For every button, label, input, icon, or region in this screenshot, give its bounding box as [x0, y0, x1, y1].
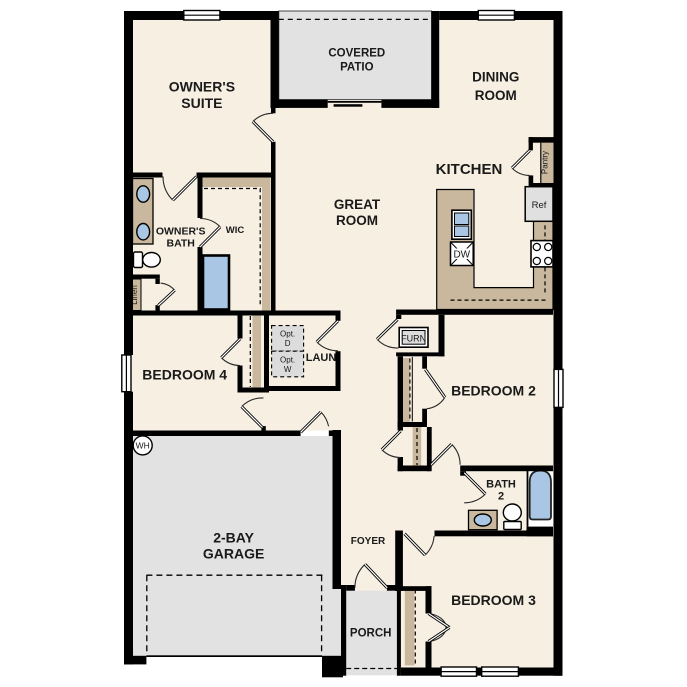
svg-text:BATH: BATH — [486, 479, 516, 491]
svg-text:BEDROOM 3: BEDROOM 3 — [451, 592, 536, 608]
svg-text:BEDROOM 2: BEDROOM 2 — [451, 383, 536, 399]
svg-text:BEDROOM 4: BEDROOM 4 — [142, 367, 227, 383]
svg-text:KITCHEN: KITCHEN — [436, 161, 503, 178]
svg-text:OWNER'S: OWNER'S — [156, 226, 206, 238]
svg-text:ROOM: ROOM — [475, 88, 517, 103]
svg-text:D: D — [285, 339, 291, 348]
svg-text:Opt.: Opt. — [280, 356, 295, 365]
svg-text:W: W — [284, 365, 292, 374]
svg-text:PATIO: PATIO — [340, 62, 373, 74]
svg-text:Opt.: Opt. — [280, 330, 295, 339]
svg-text:GREAT: GREAT — [334, 197, 381, 212]
svg-text:FOYER: FOYER — [351, 536, 386, 547]
svg-text:DINING: DINING — [472, 70, 519, 85]
svg-text:Pantry: Pantry — [541, 151, 550, 174]
svg-text:GARAGE: GARAGE — [203, 546, 264, 562]
svg-text:FURN: FURN — [401, 333, 426, 343]
svg-text:WIC: WIC — [226, 225, 245, 236]
svg-text:ROOM: ROOM — [336, 213, 378, 228]
svg-text:2-BAY: 2-BAY — [213, 530, 254, 546]
svg-text:OWNER'S: OWNER'S — [169, 79, 235, 95]
svg-text:SUITE: SUITE — [181, 95, 222, 111]
svg-text:WH: WH — [136, 441, 150, 451]
svg-text:Ref: Ref — [532, 200, 547, 211]
svg-text:BATH: BATH — [167, 238, 195, 250]
svg-text:PORCH: PORCH — [350, 627, 392, 639]
svg-text:LAUN: LAUN — [306, 352, 337, 364]
svg-text:DW: DW — [453, 249, 470, 260]
svg-text:2: 2 — [498, 491, 504, 503]
svg-text:COVERED: COVERED — [328, 48, 385, 60]
